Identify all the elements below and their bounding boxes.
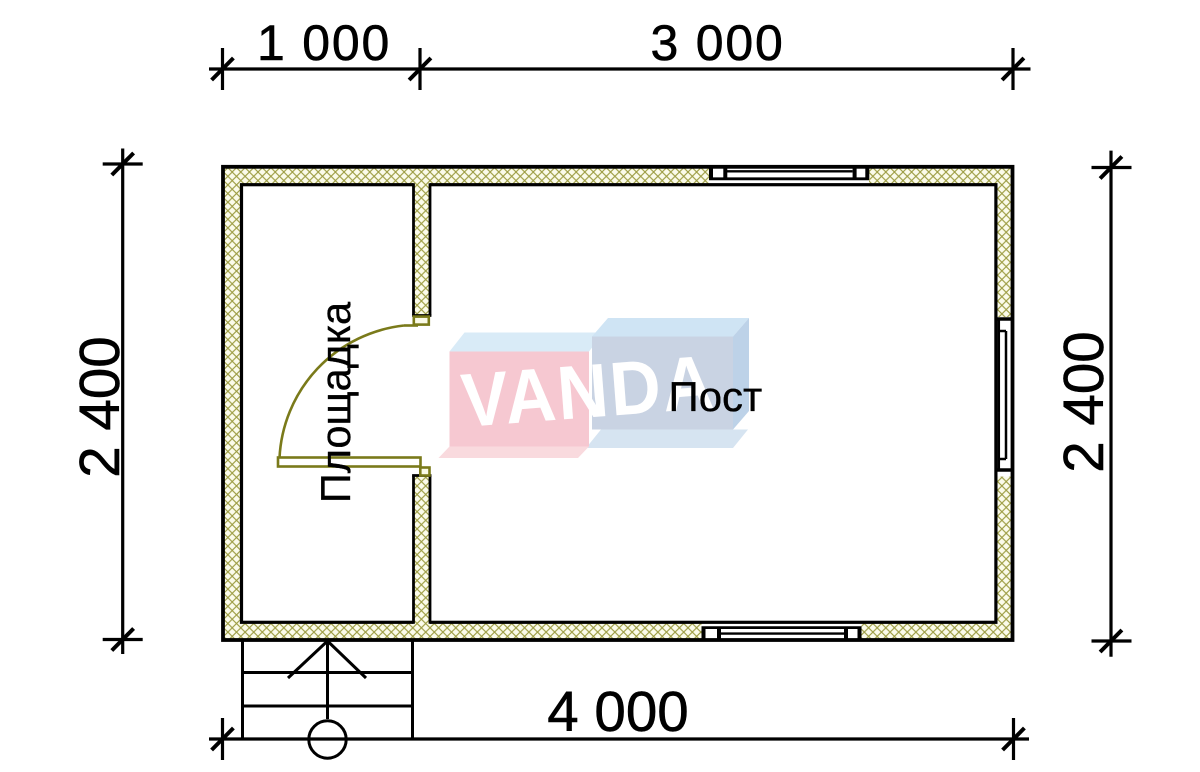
svg-text:2 400: 2 400 bbox=[68, 336, 131, 477]
svg-text:3 000: 3 000 bbox=[650, 15, 784, 71]
svg-text:4 000: 4 000 bbox=[547, 680, 688, 743]
svg-text:2 400: 2 400 bbox=[1052, 331, 1115, 472]
svg-text:Площадка: Площадка bbox=[312, 301, 359, 503]
svg-text:1 000: 1 000 bbox=[257, 15, 391, 71]
svg-text:Пост: Пост bbox=[669, 373, 763, 420]
